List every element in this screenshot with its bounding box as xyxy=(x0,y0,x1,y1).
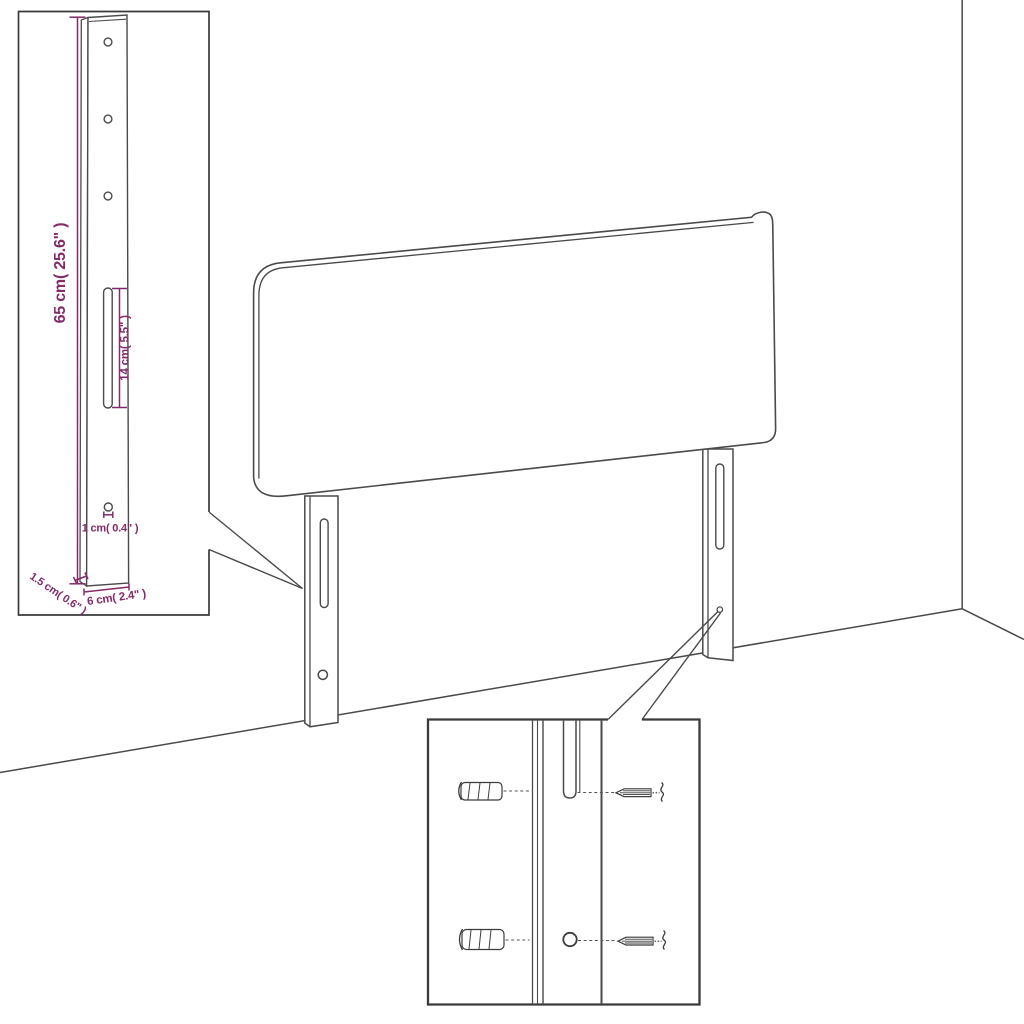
bracket-hole-lower xyxy=(104,192,112,200)
bracket-hole-top xyxy=(104,38,112,46)
floor-line-right xyxy=(962,609,1024,640)
bracket-small-hole xyxy=(104,503,112,511)
mounting-detail-inset xyxy=(428,720,700,1005)
diagram-canvas: 65 cm( 25.6" ) 14 cm( 5.5" ) 1 cm( 0.4" … xyxy=(0,0,1024,1024)
leg-left-screw-hole xyxy=(318,670,327,679)
callout-left xyxy=(209,512,303,589)
leg-left-slot xyxy=(320,519,328,608)
bracket-hole-middle xyxy=(104,115,112,123)
leg-right-slot xyxy=(716,464,724,549)
bracket-drawing xyxy=(80,15,129,586)
callout-left-line-lower xyxy=(209,550,303,589)
bracket-detail-inset: 65 cm( 25.6" ) 14 cm( 5.5" ) 1 cm( 0.4" … xyxy=(19,12,210,618)
dimension-label-hole: 1 cm( 0.4" ) xyxy=(82,523,139,535)
bracket-slot xyxy=(104,288,113,408)
headboard-leg-left xyxy=(305,496,338,727)
callout-left-line-upper xyxy=(209,512,303,589)
callout-right-line-right xyxy=(642,613,721,720)
headboard-panel xyxy=(254,212,776,496)
dimension-label-height: 65 cm( 25.6" ) xyxy=(52,223,69,324)
headboard-leg-right xyxy=(703,449,733,661)
dimension-label-slot: 14 cm( 5.5" ) xyxy=(120,315,132,381)
panel-outline xyxy=(254,212,776,496)
